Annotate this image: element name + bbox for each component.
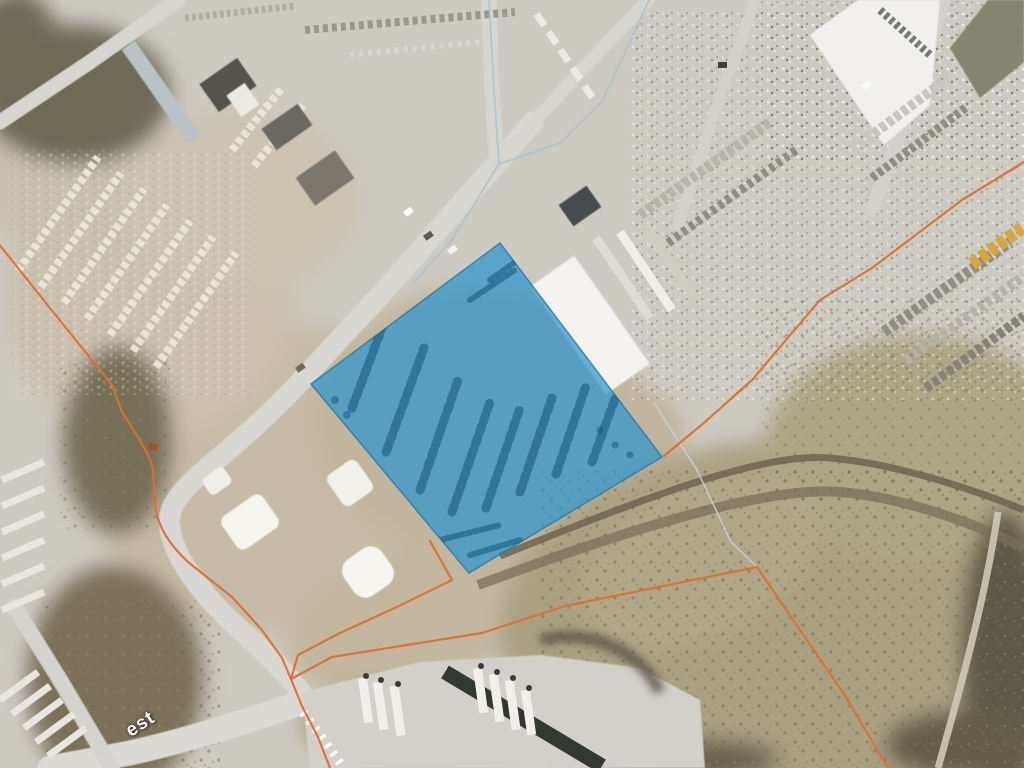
aerial-basemap	[0, 0, 1024, 768]
road-northeast	[497, 0, 648, 163]
map-viewport[interactable]: est	[0, 0, 1024, 768]
building-dark-small	[559, 186, 602, 227]
